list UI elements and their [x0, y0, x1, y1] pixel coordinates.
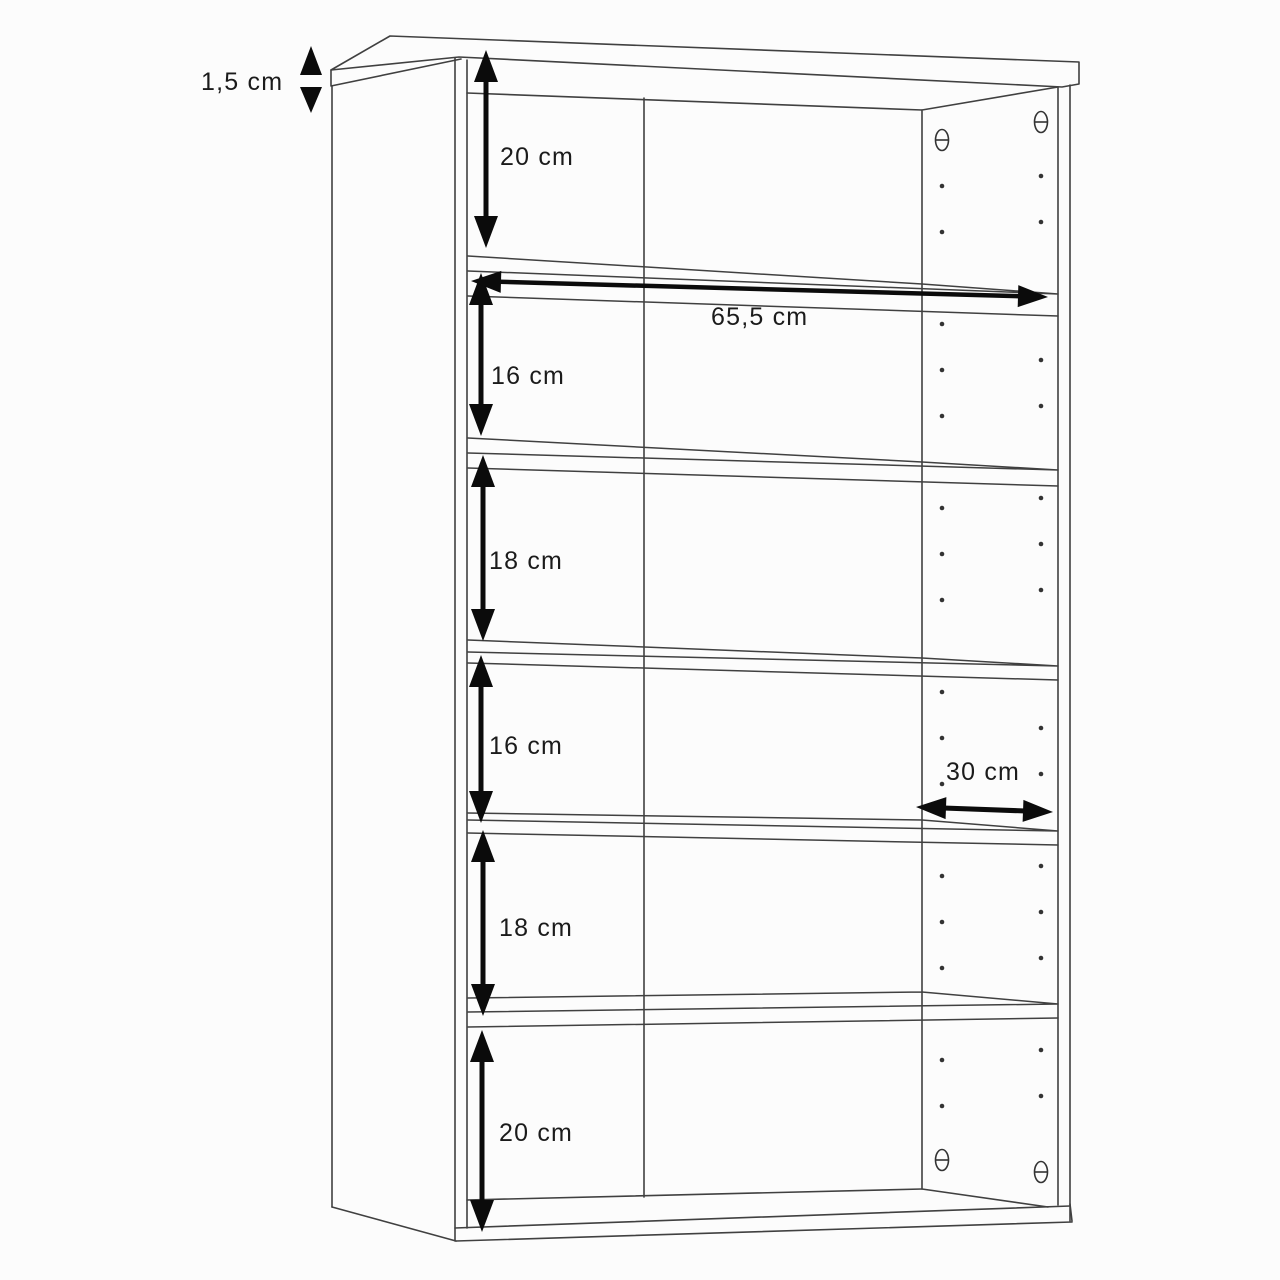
dim-label-compartment-5: 18 cm: [499, 914, 573, 942]
peg-hole: [1039, 1094, 1044, 1099]
dimension-arrows: [298, 46, 1053, 1232]
dim-arrow-16cm-upper: [469, 273, 493, 436]
dim-label-thickness: 1,5 cm: [201, 68, 283, 96]
shelf-4: [468, 813, 1058, 845]
cabinet-line-art: [331, 36, 1079, 1241]
peg-hole: [940, 736, 945, 741]
peg-hole-column-2: [1035, 112, 1048, 1183]
peg-hole: [940, 1058, 945, 1063]
dim-label-compartment-2: 16 cm: [491, 362, 565, 390]
front-left-edge: [455, 58, 467, 1241]
dim-arrow-depth-30: [916, 797, 1053, 822]
peg-hole: [940, 782, 945, 787]
peg-hole: [940, 920, 945, 925]
dim-arrow-thickness-1-5cm: [298, 46, 324, 113]
arrow-head-right: [1018, 285, 1048, 307]
peg-hole: [1039, 542, 1044, 547]
top-panel: [331, 36, 1079, 87]
arrow-head-up: [471, 830, 495, 862]
peg-hole: [940, 598, 945, 603]
interior-ceiling-line: [467, 93, 922, 110]
peg-hole: [1039, 864, 1044, 869]
peg-hole: [1039, 358, 1044, 363]
cam-lock-hole: [1035, 112, 1048, 133]
arrow-head-up: [300, 46, 322, 75]
left-side-panel-bottom-edge: [332, 1207, 456, 1241]
peg-hole: [1039, 772, 1044, 777]
dim-label-inner-width: 65,5 cm: [711, 303, 808, 331]
arrow-shaft: [940, 808, 1029, 811]
dim-arrow-18cm-lower: [471, 830, 495, 1016]
shelf-dimension-diagram: 1,5 cm 20 cm 65,5 cm 16 cm 18 cm 16 cm 3…: [0, 0, 1280, 1280]
arrow-head-down: [469, 791, 493, 823]
dim-label-compartment-1: 20 cm: [500, 143, 574, 171]
dim-label-depth: 30 cm: [946, 758, 1020, 786]
cam-lock-hole: [936, 130, 949, 151]
arrow-head-up: [469, 655, 493, 687]
peg-hole: [940, 230, 945, 235]
peg-hole: [940, 184, 945, 189]
dim-label-compartment-6: 20 cm: [499, 1119, 573, 1147]
peg-hole: [1039, 220, 1044, 225]
peg-hole: [940, 414, 945, 419]
arrow-head-down: [471, 609, 495, 641]
peg-hole: [940, 552, 945, 557]
shelf-5: [468, 992, 1058, 1027]
peg-hole: [1039, 910, 1044, 915]
arrow-head-up: [471, 455, 495, 487]
peg-hole: [940, 874, 945, 879]
cam-lock-hole: [1035, 1162, 1048, 1183]
peg-hole: [940, 368, 945, 373]
arrow-head-down: [469, 404, 493, 436]
peg-hole: [940, 322, 945, 327]
right-inner-panel: [922, 87, 1058, 1207]
peg-hole: [1039, 1048, 1044, 1053]
diagram-canvas: 1,5 cm 20 cm 65,5 cm 16 cm 18 cm 16 cm 3…: [0, 0, 1280, 1280]
shelf-2: [468, 438, 1058, 486]
peg-hole: [940, 1104, 945, 1109]
cam-lock-hole: [936, 1150, 949, 1171]
peg-hole: [940, 506, 945, 511]
arrow-head-left: [916, 797, 946, 819]
peg-hole: [1039, 404, 1044, 409]
shelf-3: [468, 640, 1058, 680]
arrow-head-down: [300, 87, 322, 113]
arrow-head-down: [474, 216, 498, 248]
peg-hole: [1039, 496, 1044, 501]
arrow-head-right: [1023, 800, 1053, 822]
peg-hole: [1039, 588, 1044, 593]
dim-arrow-20cm-top: [474, 50, 498, 248]
arrow-head-up: [470, 1030, 494, 1062]
dim-label-compartment-3: 18 cm: [489, 547, 563, 575]
peg-hole: [1039, 726, 1044, 731]
peg-holes: [936, 112, 1048, 1183]
peg-hole: [1039, 956, 1044, 961]
peg-hole: [940, 966, 945, 971]
front-right-edge: [1058, 85, 1070, 1221]
interior-floor-line: [467, 1189, 922, 1200]
arrow-head-up: [474, 50, 498, 82]
peg-hole: [940, 690, 945, 695]
dimension-labels: 1,5 cm 20 cm 65,5 cm 16 cm 18 cm 16 cm 3…: [201, 68, 1020, 1147]
dim-arrow-20cm-bottom: [470, 1030, 494, 1232]
dim-arrow-width-65-5: [471, 271, 1048, 307]
dim-label-compartment-4: 16 cm: [489, 732, 563, 760]
peg-hole: [1039, 174, 1044, 179]
